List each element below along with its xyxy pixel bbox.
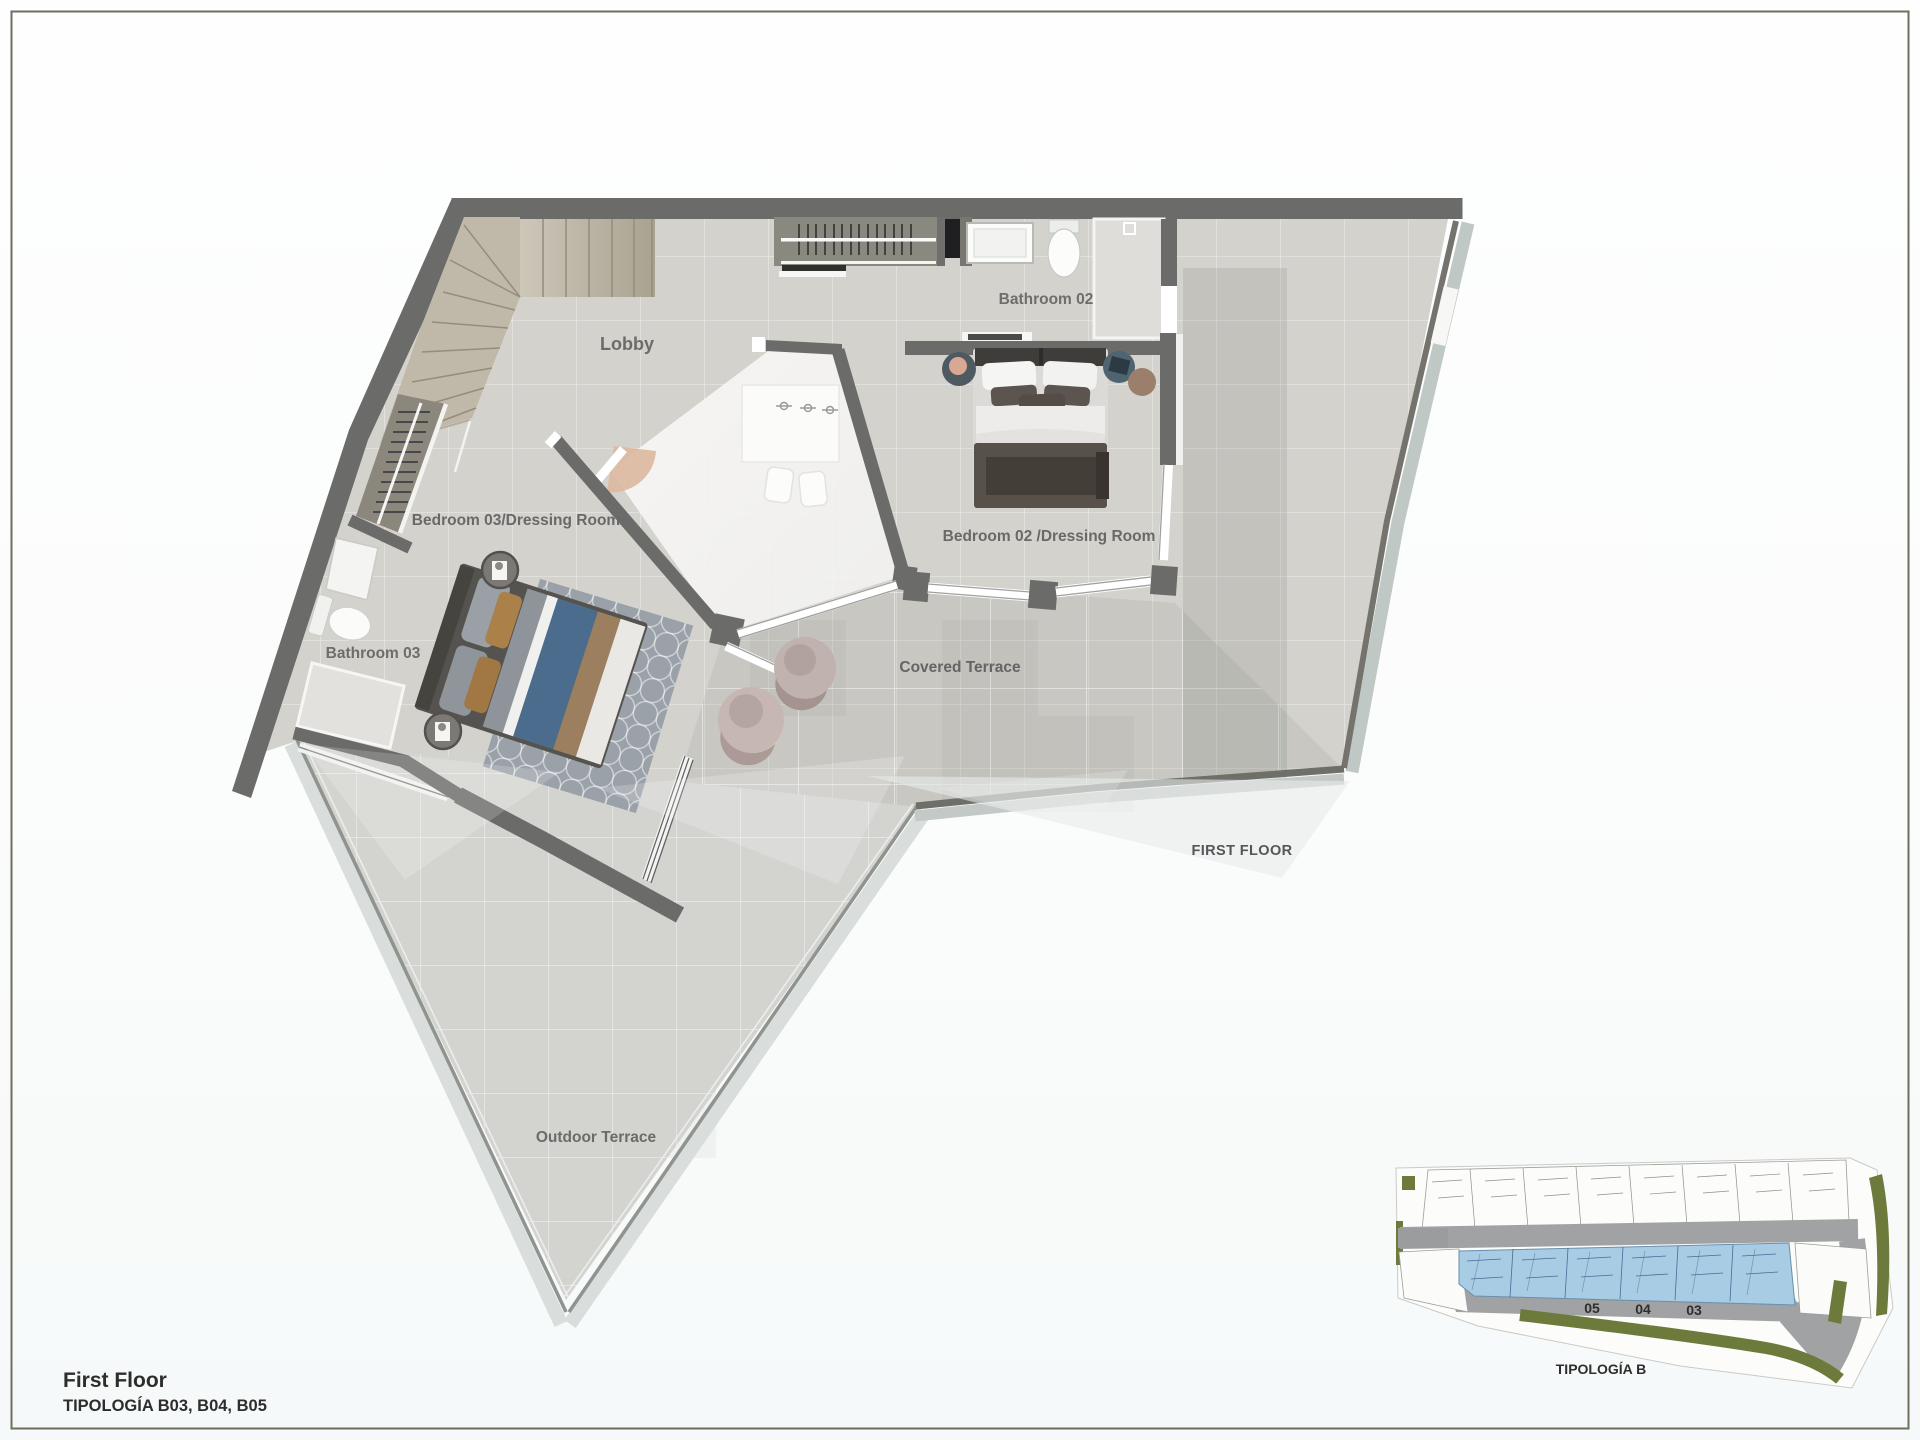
svg-text:Lobby: Lobby (600, 334, 654, 354)
svg-text:FIRST FLOOR: FIRST FLOOR (1191, 843, 1292, 859)
svg-text:Bedroom 03/Dressing Room: Bedroom 03/Dressing Room (412, 512, 620, 529)
svg-text:Covered Terrace: Covered Terrace (899, 659, 1021, 676)
svg-text:Bathroom 02: Bathroom 02 (999, 291, 1094, 308)
svg-text:TIPOLOGÍA B03, B04, B05: TIPOLOGÍA B03, B04, B05 (63, 1396, 267, 1415)
svg-text:04: 04 (1635, 1301, 1651, 1317)
svg-text:Bedroom 02 /Dressing Room: Bedroom 02 /Dressing Room (943, 528, 1156, 545)
svg-text:Bathroom 03: Bathroom 03 (326, 645, 421, 662)
svg-text:TIPOLOGÍA B: TIPOLOGÍA B (1556, 1361, 1646, 1377)
svg-text:05: 05 (1584, 1300, 1600, 1316)
svg-text:03: 03 (1686, 1302, 1702, 1318)
svg-text:Outdoor Terrace: Outdoor Terrace (536, 1129, 657, 1146)
svg-text:First Floor: First Floor (63, 1369, 167, 1392)
